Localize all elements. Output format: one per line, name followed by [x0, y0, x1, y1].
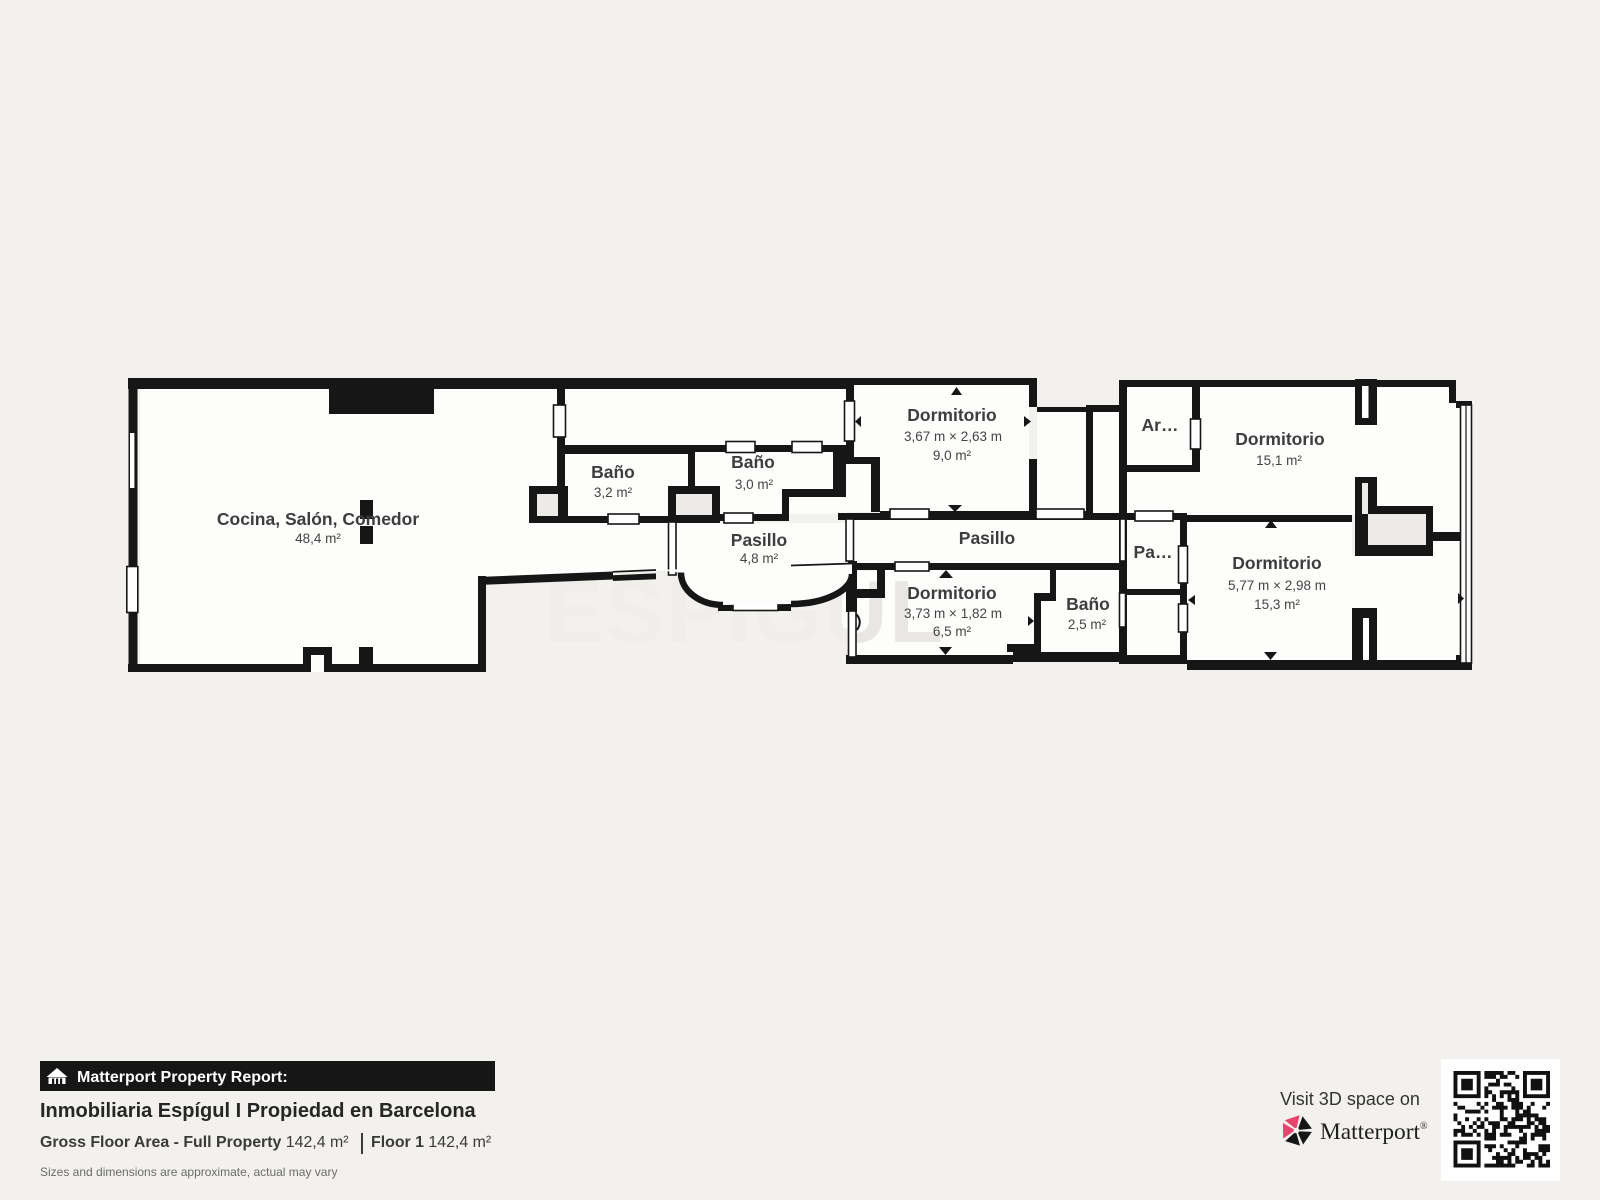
svg-text:Cocina, Salón, Comedor: Cocina, Salón, Comedor [217, 509, 419, 529]
svg-text:Dormitorio: Dormitorio [907, 405, 996, 425]
svg-text:Matterport®: Matterport® [1320, 1119, 1428, 1145]
svg-text:3,67 m × 2,63 m: 3,67 m × 2,63 m [904, 429, 1002, 444]
svg-text:9,0 m²: 9,0 m² [933, 448, 972, 463]
svg-text:Dormitorio: Dormitorio [1235, 429, 1324, 449]
svg-text:15,3 m²: 15,3 m² [1254, 597, 1300, 612]
svg-text:3,73 m × 1,82 m: 3,73 m × 1,82 m [904, 606, 1002, 621]
svg-text:Visit 3D space on: Visit 3D space on [1280, 1089, 1420, 1109]
svg-text:Ar…: Ar… [1142, 415, 1179, 435]
svg-text:Pasillo: Pasillo [959, 528, 1015, 548]
svg-text:Floor 1 142,4 m²: Floor 1 142,4 m² [371, 1134, 491, 1151]
svg-text:3,0 m²: 3,0 m² [735, 477, 774, 492]
svg-text:Pasillo: Pasillo [731, 530, 787, 550]
svg-text:5,77 m × 2,98 m: 5,77 m × 2,98 m [1228, 578, 1326, 593]
svg-text:Pa…: Pa… [1134, 542, 1173, 562]
svg-text:48,4 m²: 48,4 m² [295, 531, 341, 546]
svg-text:2,5 m²: 2,5 m² [1068, 617, 1107, 632]
svg-text:Baño: Baño [591, 462, 635, 482]
svg-text:Baño: Baño [1066, 594, 1110, 614]
svg-text:Baño: Baño [731, 452, 775, 472]
svg-text:Sizes and dimensions are appro: Sizes and dimensions are approximate, ac… [40, 1165, 337, 1179]
svg-text:Dormitorio: Dormitorio [1232, 553, 1321, 573]
svg-text:Gross Floor Area - Full Proper: Gross Floor Area - Full Property 142,4 m… [40, 1134, 348, 1151]
svg-text:3,2 m²: 3,2 m² [594, 485, 633, 500]
svg-text:4,8 m²: 4,8 m² [740, 551, 779, 566]
svg-text:Matterport Property Report:: Matterport Property Report: [77, 1069, 288, 1086]
svg-text:15,1 m²: 15,1 m² [1256, 453, 1302, 468]
svg-text:Inmobiliaria Espígul I Propied: Inmobiliaria Espígul I Propiedad en Barc… [40, 1100, 477, 1122]
svg-text:Dormitorio: Dormitorio [907, 583, 996, 603]
svg-text:6,5 m²: 6,5 m² [933, 624, 972, 639]
